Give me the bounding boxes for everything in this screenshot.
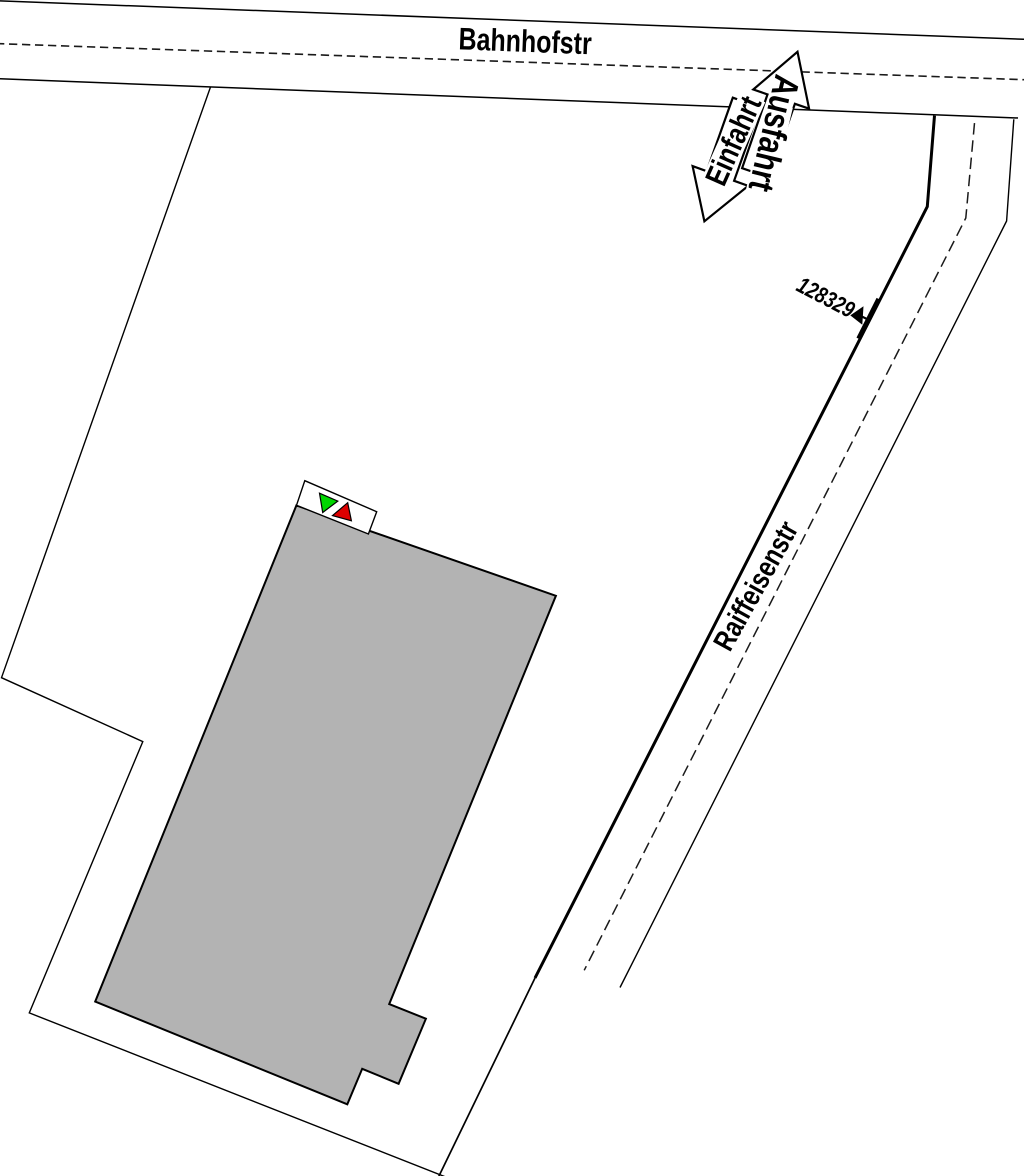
- svg-text:Bahnhofstr: Bahnhofstr: [458, 21, 592, 61]
